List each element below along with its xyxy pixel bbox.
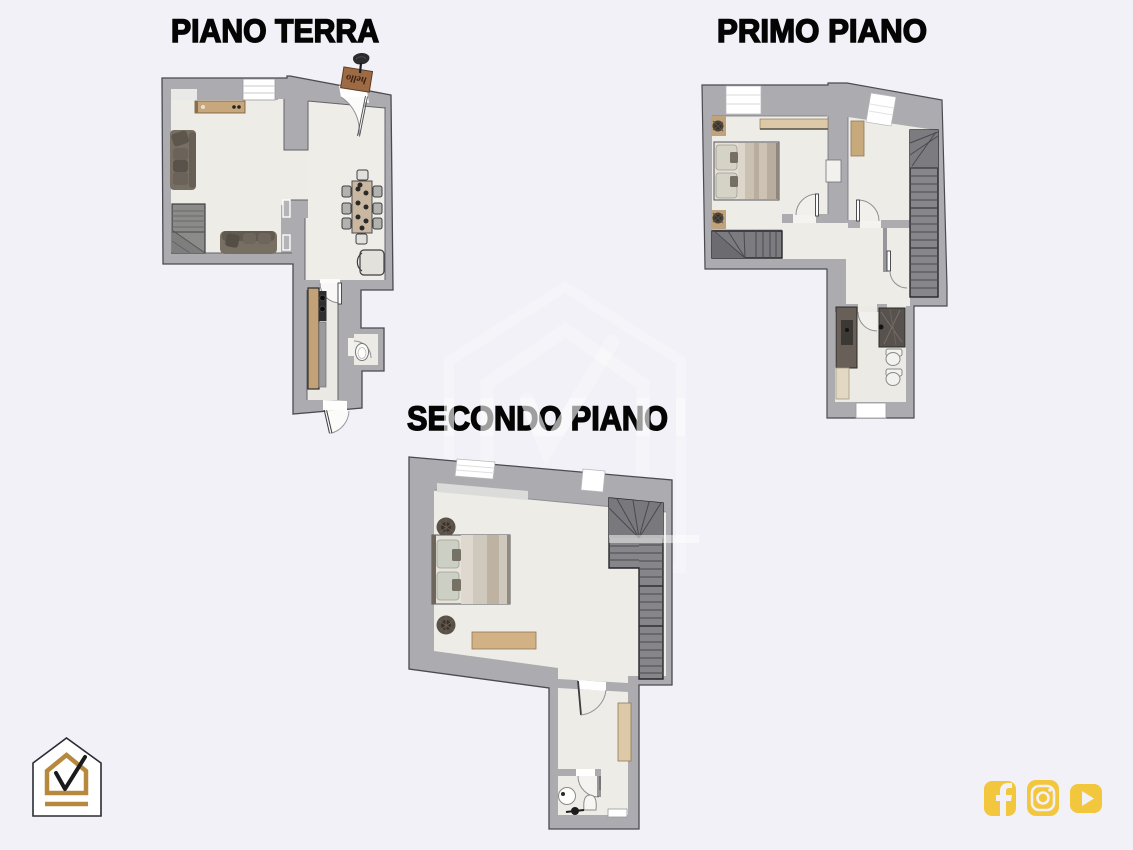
svg-text:PIANO TERRA: PIANO TERRA (171, 13, 379, 49)
svg-text:PRIMO PIANO: PRIMO PIANO (717, 13, 927, 49)
